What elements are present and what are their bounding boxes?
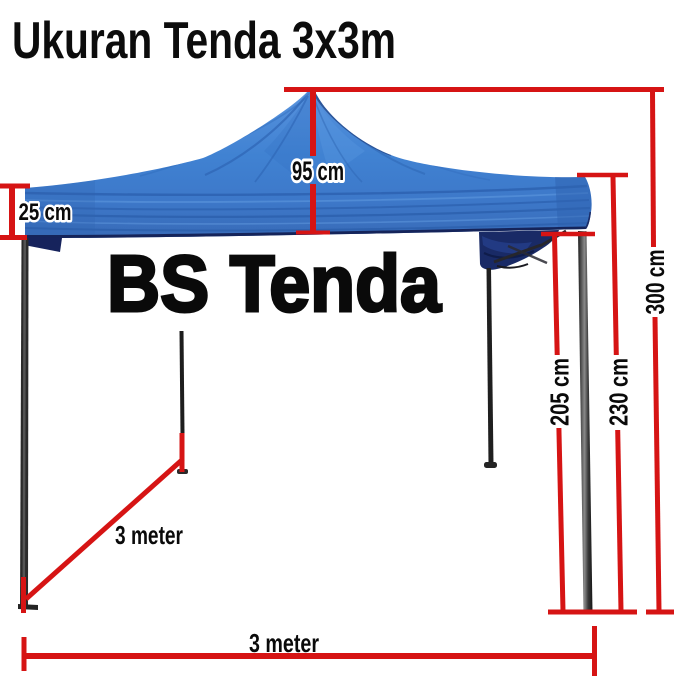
svg-text:BS Tenda: BS Tenda <box>107 239 441 328</box>
svg-text:25 cm: 25 cm <box>19 199 72 226</box>
svg-text:95 cm: 95 cm <box>292 156 344 186</box>
svg-text:3 meter: 3 meter <box>115 520 183 550</box>
svg-text:3 meter: 3 meter <box>249 628 319 658</box>
svg-text:Ukuran Tenda 3x3m: Ukuran Tenda 3x3m <box>12 12 396 70</box>
svg-text:205 cm: 205 cm <box>545 358 575 426</box>
svg-text:300 cm: 300 cm <box>640 250 670 315</box>
svg-text:230 cm: 230 cm <box>604 358 634 426</box>
